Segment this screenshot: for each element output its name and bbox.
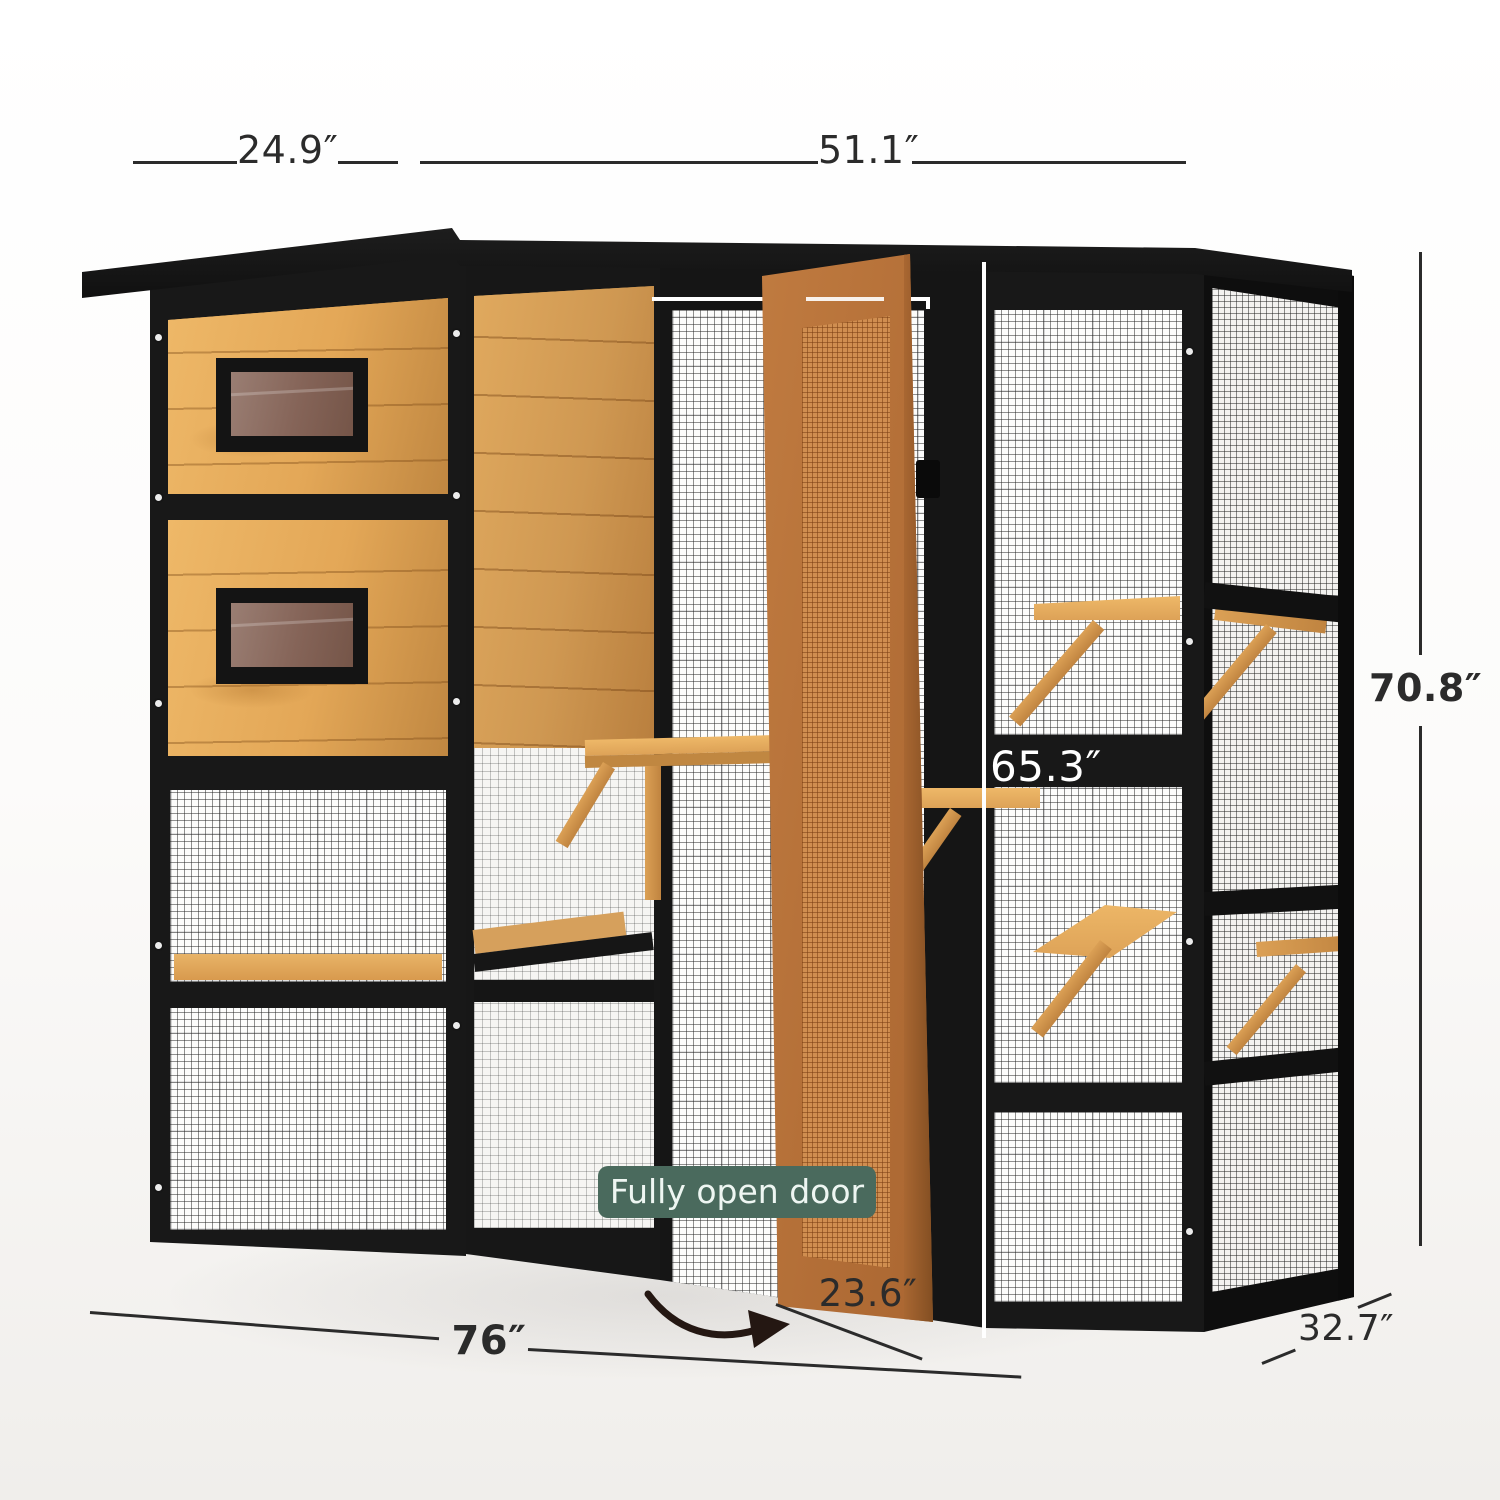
screw (155, 942, 162, 949)
house-window-frame (216, 358, 368, 452)
dim-label-door-width: 23.6″ (818, 1272, 918, 1315)
dim-label-top-left-width: 24.9″ (237, 128, 337, 172)
mesh-panel (994, 310, 1182, 735)
screw (1186, 938, 1193, 945)
screw (155, 494, 162, 501)
house-window-frame (216, 588, 368, 684)
dim-label-overall-width: 76″ (448, 1318, 530, 1364)
screw (453, 698, 460, 705)
opening-top-tick-overlay (806, 297, 884, 301)
screw (1186, 1228, 1193, 1235)
screw (155, 700, 162, 707)
dim-line (912, 161, 1186, 164)
side-panel (1204, 252, 1354, 1332)
dim-label-overall-height: 70.8″ (1369, 666, 1475, 710)
left-tower (150, 242, 466, 1256)
house-window (231, 372, 353, 436)
screw (155, 334, 162, 341)
mesh-panel (994, 1112, 1182, 1302)
screw (453, 330, 460, 337)
interior-view (474, 748, 654, 1228)
mesh-panel (170, 790, 446, 982)
screw (453, 492, 460, 499)
product-render: 24.9″ 51.1″ 70.8″ 65.3″ 76″ 23.6″ 32.7″ … (0, 0, 1500, 1500)
opening-top-tick-end (926, 297, 930, 309)
side-mesh-panel (1212, 288, 1342, 1292)
dim-label-overall-depth: 32.7″ (1298, 1308, 1394, 1349)
side-back-post (1338, 272, 1354, 1312)
mesh-panel (170, 1008, 446, 1230)
dim-line (133, 161, 237, 164)
opening-height-line (982, 262, 986, 1338)
door-mesh (802, 316, 890, 1268)
dim-line (1419, 726, 1422, 1246)
interior-rail (474, 980, 654, 1002)
dim-line (420, 161, 818, 164)
screw (1186, 348, 1193, 355)
door-latch[interactable] (916, 460, 940, 498)
dim-label-opening-height: 65.3″ (990, 742, 1110, 791)
fully-open-door-badge: Fully open door (598, 1166, 876, 1218)
screw (453, 1022, 460, 1029)
screw (1186, 638, 1193, 645)
shelf-bracket (645, 766, 661, 900)
house-window (231, 603, 353, 667)
house-side-wall (474, 286, 654, 748)
interior-floor-ledge (174, 954, 442, 980)
dim-line (338, 161, 398, 164)
screw (155, 1184, 162, 1191)
dim-line (1419, 252, 1422, 655)
dim-label-top-right-width: 51.1″ (818, 128, 912, 172)
cat-shelf (920, 788, 1040, 808)
door-swing-arrow-icon (642, 1286, 792, 1350)
